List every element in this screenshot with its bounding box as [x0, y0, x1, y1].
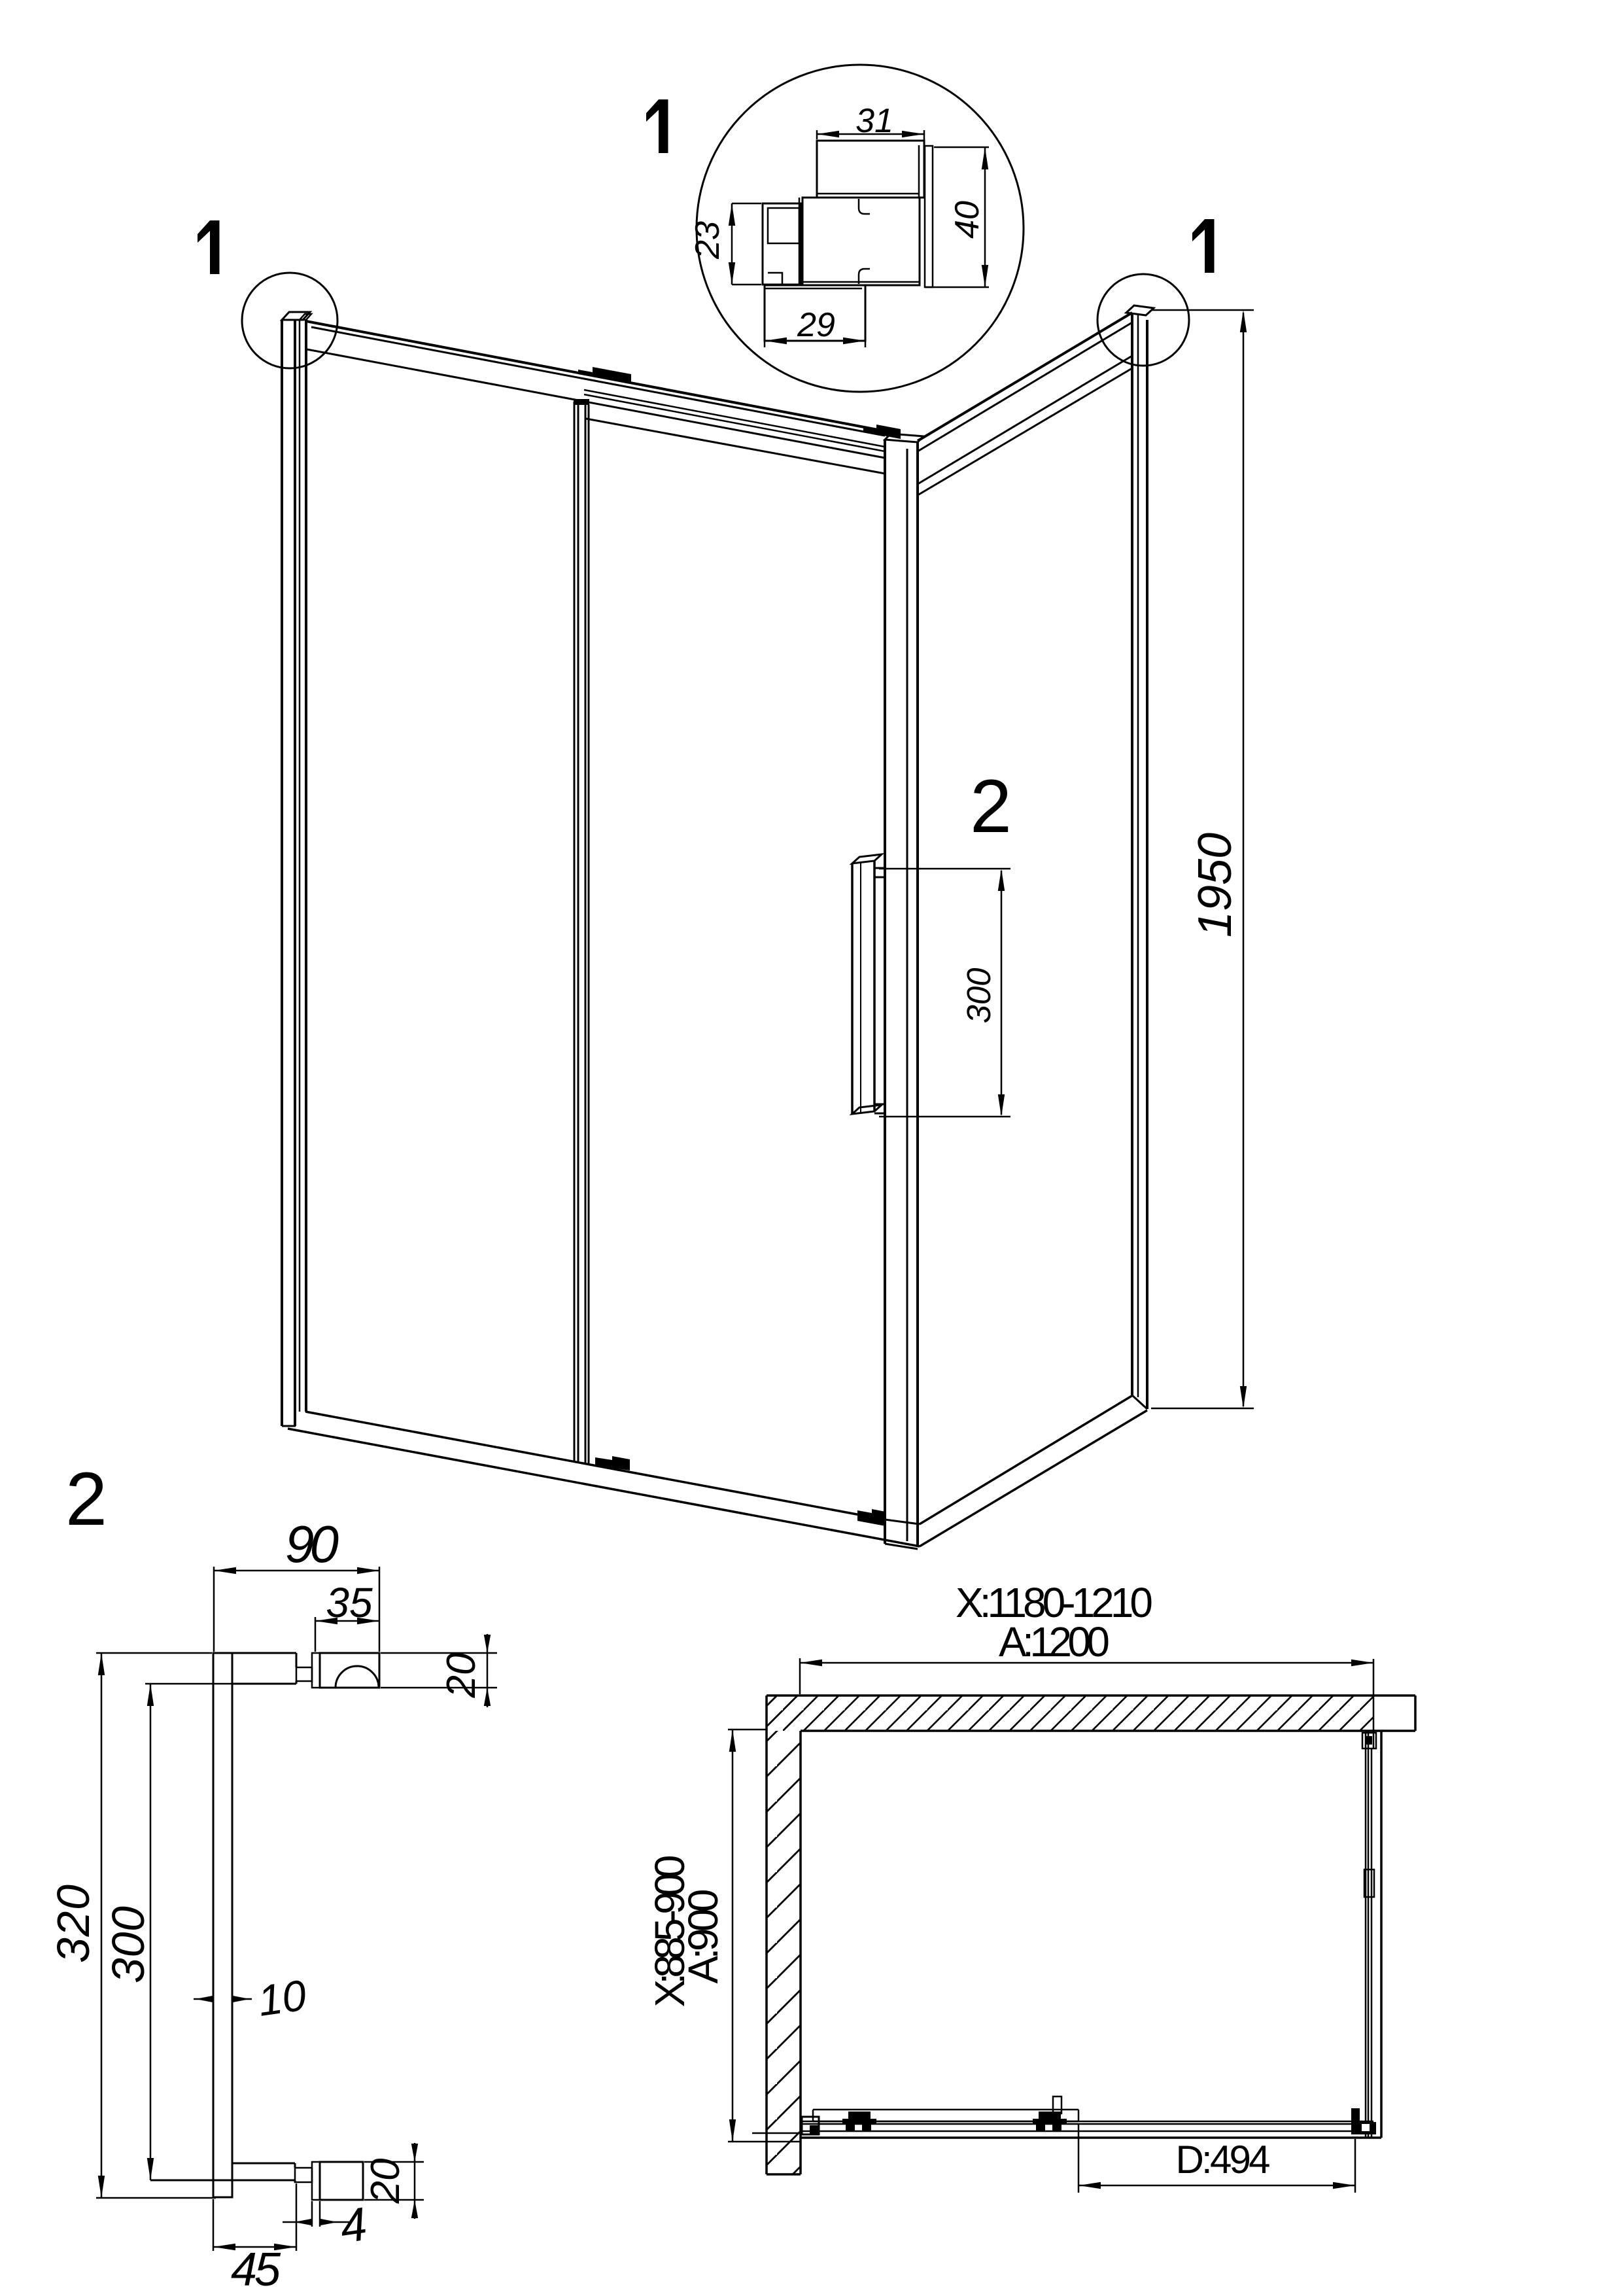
svg-text:A:900: A:900: [680, 1889, 727, 1984]
svg-text:31: 31: [855, 102, 893, 140]
svg-text:20: 20: [363, 2159, 408, 2204]
svg-text:23: 23: [689, 221, 727, 260]
svg-text:20: 20: [439, 1653, 484, 1699]
svg-text:45: 45: [231, 2244, 281, 2296]
svg-text:2: 2: [65, 1457, 107, 1541]
svg-text:300: 300: [960, 967, 997, 1023]
svg-text:2: 2: [970, 765, 1012, 848]
svg-text:40: 40: [948, 201, 986, 239]
svg-text:1950: 1950: [1189, 833, 1241, 937]
svg-text:320: 320: [48, 1885, 99, 1963]
svg-text:D:494: D:494: [1176, 2138, 1271, 2182]
svg-text:300: 300: [103, 1906, 154, 1983]
svg-text:90: 90: [285, 1515, 339, 1573]
svg-text:10: 10: [255, 1970, 309, 2025]
svg-text:A:1200: A:1200: [999, 1618, 1110, 1665]
svg-text:29: 29: [797, 306, 835, 344]
svg-text:35: 35: [326, 1579, 373, 1626]
